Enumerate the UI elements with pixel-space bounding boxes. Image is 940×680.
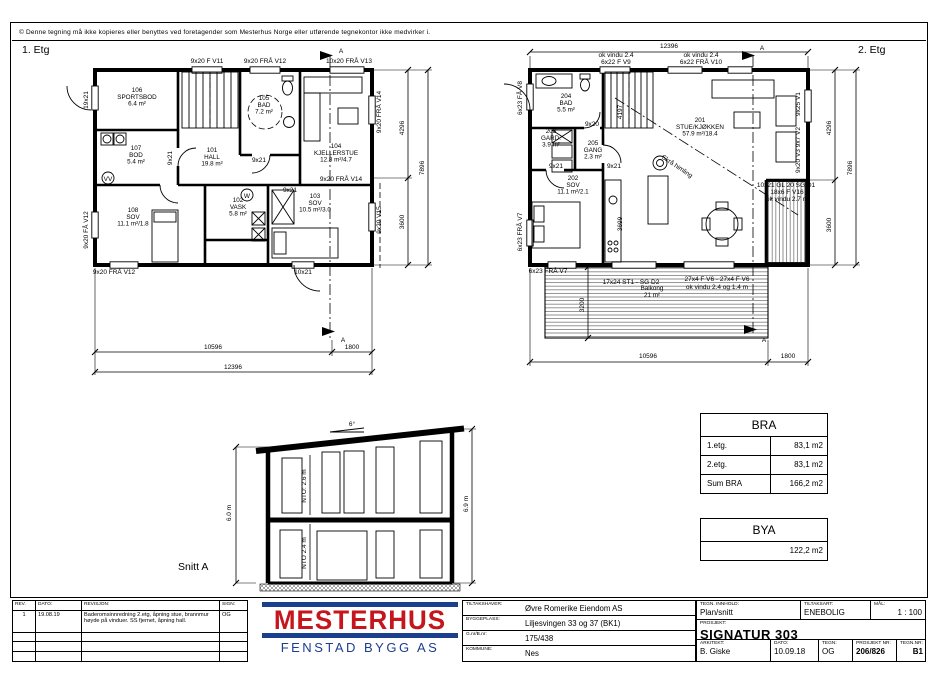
info-label: G.nr/B.nr:: [463, 631, 525, 645]
annotation-label: A: [760, 45, 765, 52]
rev-sign: OG: [220, 611, 247, 632]
bra-row-value: 83,1 m2: [771, 437, 827, 455]
project-number: 206/826: [856, 646, 896, 656]
rev-header: DATO:: [36, 601, 82, 610]
room-label: 205GANG2.3 m²: [584, 140, 603, 161]
info-label: BYGGEPLASS:: [463, 616, 525, 630]
annotation-label: 18x6 F V16: [770, 189, 804, 196]
annotation-label: 6.0 m: [226, 505, 233, 521]
annotation-label: 4296: [826, 120, 833, 135]
annotation-label: 9x21: [283, 187, 297, 194]
drawing-info-table: TEGN. INNHOLD: Plan/snitt TILTAKSART: EN…: [696, 600, 926, 662]
rev-header: REV.: [13, 601, 36, 610]
bra-row-label: Sum BRA: [701, 475, 771, 493]
floor1-plan: 106SPORTSBOD6.4 m²107BOD5.4 m²101HALL19.…: [67, 48, 432, 375]
info-value: Nes: [525, 646, 695, 660]
rev-header: REVISJON:: [82, 601, 220, 610]
stair-floor2: [605, 72, 653, 128]
bra-table: BRA 1.etg.83,1 m2 2.etg.83,1 m2 Sum BRA1…: [700, 413, 828, 494]
annotation-label: 9x25 V1: [795, 92, 802, 116]
annotation-label: 6x23 FÅ V8: [515, 81, 524, 115]
annotation-label: A: [339, 48, 344, 55]
architect-name: B. Giske: [700, 646, 770, 656]
plan-drawings: 106SPORTSBOD6.4 m²107BOD5.4 m²101HALL19.…: [0, 0, 940, 680]
annotation-label: 4296: [399, 120, 406, 135]
room-label: 202SOV11.1 m²/2.1: [557, 175, 589, 196]
bya-value: 122,2 m2: [771, 542, 827, 560]
annotation-label: 9x20 FRÅ V14: [320, 174, 363, 183]
bra-row-label: 1.etg.: [701, 437, 771, 455]
info-label: KOMMUNE:: [463, 646, 525, 660]
annotation-label: 6x22 FRÅ V10: [680, 57, 723, 66]
tegn-value: OG: [822, 646, 852, 656]
date-cell: DATO: 10.09.18: [771, 640, 819, 661]
logo-wordmark: MESTERHUS: [260, 607, 460, 634]
drawing-number: B1: [900, 646, 925, 656]
tegn-cell: TEGN: OG: [819, 640, 853, 661]
revision-table: REV. DATO: REVISJON: SIGN: 1 19.08.19 Ba…: [12, 600, 248, 662]
section-title: Snitt A: [178, 561, 208, 573]
room-label: 107BOD5.4 m²: [127, 145, 145, 166]
annotation-label: 9x20 FRÅ V12: [244, 56, 287, 65]
annotation-label: 10x20 FRÅ V13: [326, 56, 372, 65]
annotation-label: 17x24 ST1 - SG D2: [603, 279, 660, 286]
annotation-label: ok vindu 2.4 og 1.4 m: [686, 284, 748, 291]
annotation-label: NTO 2.4 m: [301, 537, 308, 569]
annotation-label: 9x21: [167, 151, 174, 165]
annotation-label: 3699: [617, 216, 624, 231]
annotation-label: 10596: [639, 353, 657, 360]
annotation-label: 3600: [399, 214, 406, 229]
room-label: 204BAD5.5 m²: [557, 93, 575, 114]
section-drawing: Snitt A 6°NTO: 2.6 mNTO 2.4 m6.0 m6.9 m: [178, 420, 476, 591]
tiltaksart-cell: TILTAKSART: ENEBOLIG: [801, 601, 871, 619]
room-label: 104KJELLERSTUE12.8 m²/4.7: [314, 143, 358, 164]
annotation-label: 6x22 F V9: [601, 59, 631, 66]
annotation-label: 9x20 V3 9x7 V2: [795, 127, 802, 173]
annotation-label: NTO: 2.6 m: [301, 469, 308, 502]
annotation-label: 10x21 GL 20 SG D1: [757, 182, 816, 189]
annotation-label: 1800: [345, 344, 360, 351]
bra-row-value: 166,2 m2: [771, 475, 827, 493]
rev-text: Baderomsinnredning 2.etg, åpning stue, b…: [82, 611, 220, 632]
annotation-label: ok vindu 2.4: [683, 52, 718, 59]
annotation-label: 3200: [579, 297, 586, 312]
building-type: ENEBOLIG: [804, 607, 870, 617]
annotation-label: 19x21: [83, 91, 90, 109]
bath-fixtures-floor2: [536, 74, 590, 91]
room-label: 101HALL19.8 m²: [201, 147, 222, 168]
bra-row-label: 2.etg.: [701, 456, 771, 474]
title-block: REV. DATO: REVISJON: SIGN: 1 19.08.19 Ba…: [10, 597, 928, 664]
annotation-label: 9x20 FRÅ V14: [374, 90, 383, 133]
bya-table: BYA 122,2 m2: [700, 518, 828, 561]
drawing-sheet: © Denne tegning må ikke kopieres eller b…: [0, 0, 940, 680]
annotation-label: 7896: [419, 160, 426, 175]
project-number-cell: PROSJEKT NR: 206/826: [853, 640, 897, 661]
bath-fixtures-floor1: [248, 76, 295, 129]
info-value: Liljesvingen 33 og 37 (BK1): [525, 616, 695, 630]
room-label: 105BAD7.2 m²: [255, 95, 273, 116]
info-value: 175/438: [525, 631, 695, 645]
company-logo: MESTERHUS FENSTAD BYGG AS: [260, 602, 460, 660]
annotation-label: 10596: [204, 344, 222, 351]
logo-subtitle: FENSTAD BYGG AS: [260, 640, 460, 655]
date-value: 10.09.18: [774, 646, 818, 656]
annotation-label: VV: [104, 176, 113, 183]
annotation-label: 6.9 m: [463, 496, 470, 512]
project-info-table: TILTAKSHAVER:Øvre Romerike Eiendom AS BY…: [462, 600, 696, 662]
annotation-label: 3600: [826, 217, 833, 232]
rev-number: 1: [13, 611, 36, 632]
drawing-content: Plan/snitt: [700, 607, 800, 617]
room-label: 201STUE/KJØKKEN57.9 m²/18.4: [676, 117, 724, 138]
bya-title: BYA: [701, 519, 827, 542]
annotation-label: 9x20: [585, 121, 599, 128]
annotation-label: ok vindu 2.4: [598, 52, 633, 59]
annotation-label: W: [244, 193, 251, 200]
annotation-label: A: [341, 337, 346, 344]
drawing-number-cell: TEGN.NR: B1: [897, 640, 925, 661]
annotation-label: 9x20 FÅ V12: [81, 211, 90, 249]
annotation-label: 9x21: [252, 157, 266, 164]
scale-cell: MÅL: 1 : 100: [871, 601, 925, 619]
info-label: TILTAKSHAVER:: [463, 601, 525, 615]
annotation-label: 9x20 FRÅ V12: [93, 267, 136, 276]
annotation-label: 12396: [660, 43, 678, 50]
project-cell: PROSJEKT: SIGNATUR 303: [697, 620, 925, 640]
room-label: 108SOV11.1 m²/1.8: [117, 207, 149, 228]
rev-header: SIGN:: [220, 601, 247, 610]
room-label: 106SPORTSBOD6.4 m²: [117, 87, 157, 108]
annotation-label: 9x20 F V11: [191, 58, 224, 65]
rev-date: 19.08.19: [36, 611, 82, 632]
floor2-plan: 204BAD5.5 m²203GARD.3.9 m²205GANG2.3 m²2…: [504, 43, 860, 366]
stair-floor1: [182, 72, 238, 128]
room-label: 103SOV10.5 m²/3.0: [299, 193, 331, 214]
info-value: Øvre Romerike Eiendom AS: [525, 601, 695, 615]
annotation-label: ok vindu 2.7 m: [766, 196, 808, 203]
annotation-label: 12396: [224, 364, 242, 371]
bra-row-value: 83,1 m2: [771, 456, 827, 474]
annotation-label: 9x21: [607, 163, 621, 170]
annotation-label: 6°: [349, 420, 356, 428]
annotation-label: 4197: [617, 104, 624, 119]
annotation-label: 7896: [847, 160, 854, 175]
tegn-innhold-cell: TEGN. INNHOLD: Plan/snitt: [697, 601, 801, 619]
bra-title: BRA: [701, 414, 827, 437]
annotation-label: A: [762, 337, 767, 344]
annotation-label: 6x23 FRÅ V7: [529, 266, 568, 275]
annotation-label: 9x21: [549, 163, 563, 170]
scale-value: 1 : 100: [874, 607, 925, 617]
annotation-label: 1800: [781, 353, 796, 360]
annotation-label: 10x21: [294, 269, 312, 276]
annotation-label: 9x20 V15: [376, 206, 383, 234]
architect-cell: ARKITEKT: B. Giske: [697, 640, 771, 661]
room-label: 203GARD.3.9 m²: [541, 128, 561, 149]
annotation-label: 6x23 FRÅ V7: [515, 212, 524, 251]
annotation-label: 27x4 F V6 - 27x4 F V6: [684, 276, 749, 283]
